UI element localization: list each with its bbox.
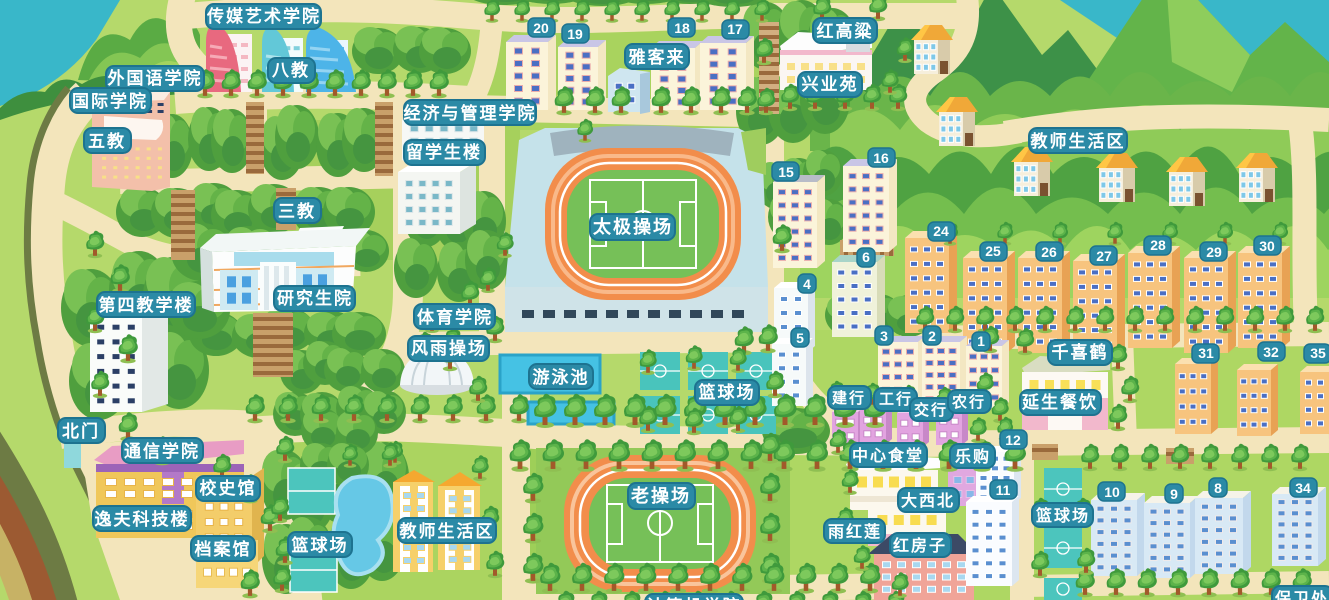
svg-text:17: 17 <box>727 21 743 37</box>
svg-text:三教: 三教 <box>278 201 316 221</box>
svg-text:五教: 五教 <box>88 131 126 151</box>
svg-text:15: 15 <box>778 164 794 180</box>
svg-text:19: 19 <box>567 26 583 42</box>
svg-text:35: 35 <box>1310 345 1326 361</box>
svg-text:传媒艺术学院: 传媒艺术学院 <box>206 6 321 26</box>
svg-text:20: 20 <box>533 20 549 36</box>
svg-text:老操场: 老操场 <box>631 485 691 506</box>
svg-text:通信学院: 通信学院 <box>124 441 200 461</box>
svg-text:红房子: 红房子 <box>893 536 947 555</box>
svg-text:31: 31 <box>1198 345 1214 361</box>
svg-text:留学生楼: 留学生楼 <box>406 142 482 162</box>
svg-text:6: 6 <box>862 249 870 265</box>
svg-text:24: 24 <box>933 223 949 239</box>
svg-text:28: 28 <box>1150 237 1166 253</box>
svg-text:32: 32 <box>1263 344 1279 360</box>
svg-text:保卫处: 保卫处 <box>1274 589 1329 600</box>
svg-text:延生餐饮: 延生餐饮 <box>1021 392 1098 412</box>
svg-text:千喜鹤: 千喜鹤 <box>1052 342 1109 362</box>
svg-text:25: 25 <box>985 243 1001 259</box>
svg-text:雅客来: 雅客来 <box>628 47 686 67</box>
svg-text:2: 2 <box>928 328 936 344</box>
svg-text:红高粱: 红高粱 <box>817 21 874 41</box>
svg-text:交行: 交行 <box>914 401 948 419</box>
svg-text:30: 30 <box>1259 238 1275 254</box>
svg-text:建行: 建行 <box>832 389 866 407</box>
svg-text:8: 8 <box>1214 480 1222 496</box>
svg-text:太极操场: 太极操场 <box>593 216 673 237</box>
svg-text:12: 12 <box>1005 432 1021 448</box>
svg-text:大西北: 大西北 <box>901 491 955 510</box>
svg-text:教师生活区: 教师生活区 <box>399 521 495 541</box>
svg-text:校史馆: 校史馆 <box>200 478 257 498</box>
svg-text:篮球场: 篮球场 <box>1035 506 1090 525</box>
svg-text:4: 4 <box>803 276 811 292</box>
svg-text:研究生院: 研究生院 <box>277 288 353 308</box>
svg-text:工行: 工行 <box>879 390 913 408</box>
svg-text:八教: 八教 <box>272 60 310 80</box>
svg-text:16: 16 <box>873 150 889 166</box>
svg-text:教师生活区: 教师生活区 <box>1030 131 1126 151</box>
svg-text:18: 18 <box>674 20 690 36</box>
svg-text:农行: 农行 <box>951 393 986 411</box>
svg-text:10: 10 <box>1104 484 1120 500</box>
svg-text:9: 9 <box>1170 486 1178 502</box>
svg-text:风雨操场: 风雨操场 <box>411 338 487 358</box>
svg-text:中心食堂: 中心食堂 <box>852 446 924 465</box>
svg-text:计算机学院: 计算机学院 <box>647 596 742 600</box>
svg-text:5: 5 <box>796 330 804 346</box>
svg-text:档案馆: 档案馆 <box>195 539 252 559</box>
svg-text:游泳池: 游泳池 <box>533 367 590 387</box>
svg-text:经济与管理学院: 经济与管理学院 <box>404 103 537 123</box>
svg-text:篮球场: 篮球场 <box>698 382 756 402</box>
svg-text:29: 29 <box>1206 244 1222 260</box>
svg-text:11: 11 <box>996 482 1011 498</box>
svg-text:国际学院: 国际学院 <box>72 91 148 111</box>
svg-text:34: 34 <box>1295 480 1311 496</box>
svg-text:外国语学院: 外国语学院 <box>108 68 203 88</box>
svg-text:兴业苑: 兴业苑 <box>802 74 859 94</box>
svg-text:逸夫科技楼: 逸夫科技楼 <box>95 509 190 529</box>
svg-text:北门: 北门 <box>62 421 100 441</box>
svg-text:体育学院: 体育学院 <box>417 307 493 327</box>
svg-text:27: 27 <box>1096 248 1112 264</box>
svg-text:1: 1 <box>977 333 985 349</box>
svg-text:第四教学楼: 第四教学楼 <box>99 295 194 315</box>
svg-text:雨红莲: 雨红莲 <box>828 522 882 541</box>
svg-text:26: 26 <box>1041 244 1057 260</box>
svg-text:3: 3 <box>880 328 888 344</box>
svg-text:乐购: 乐购 <box>955 447 991 466</box>
svg-text:篮球场: 篮球场 <box>291 535 349 555</box>
